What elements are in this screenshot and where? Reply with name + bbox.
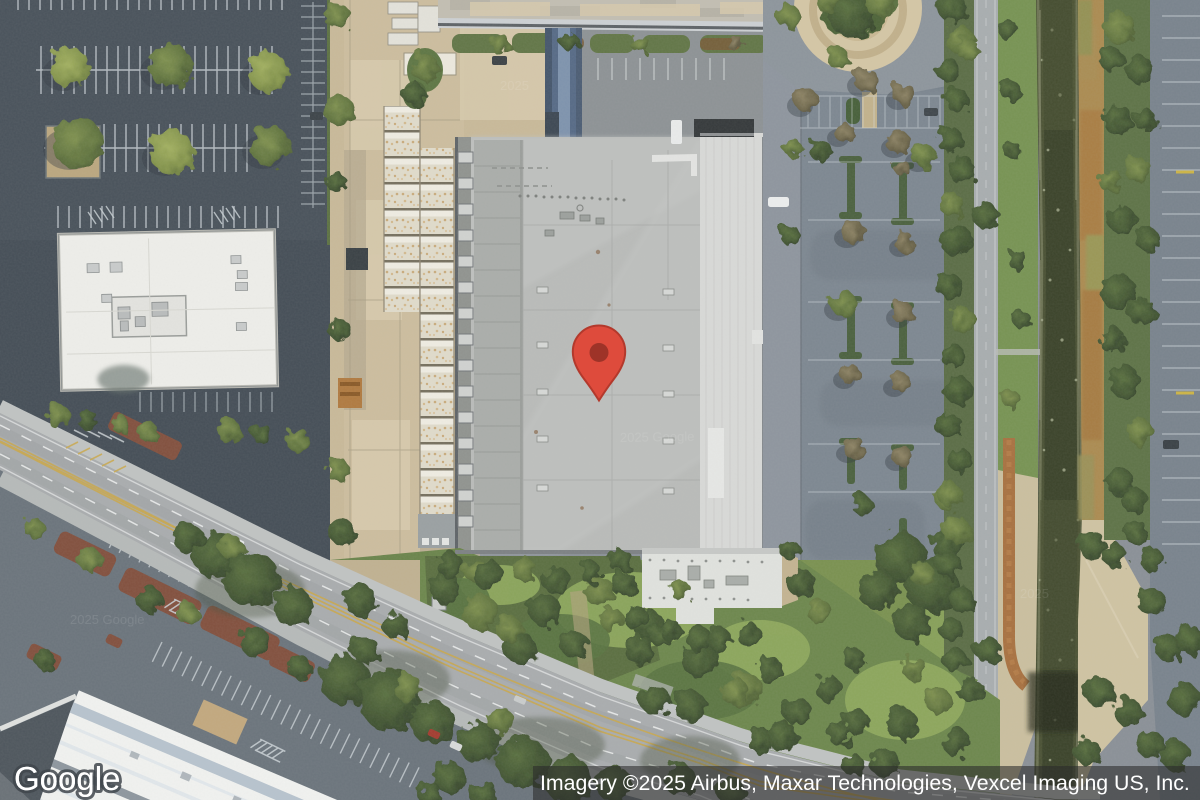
svg-text:Google: Google [14, 760, 120, 797]
svg-text:Imagery ©2025 Airbus, Maxar Te: Imagery ©2025 Airbus, Maxar Technologies… [540, 771, 1190, 795]
